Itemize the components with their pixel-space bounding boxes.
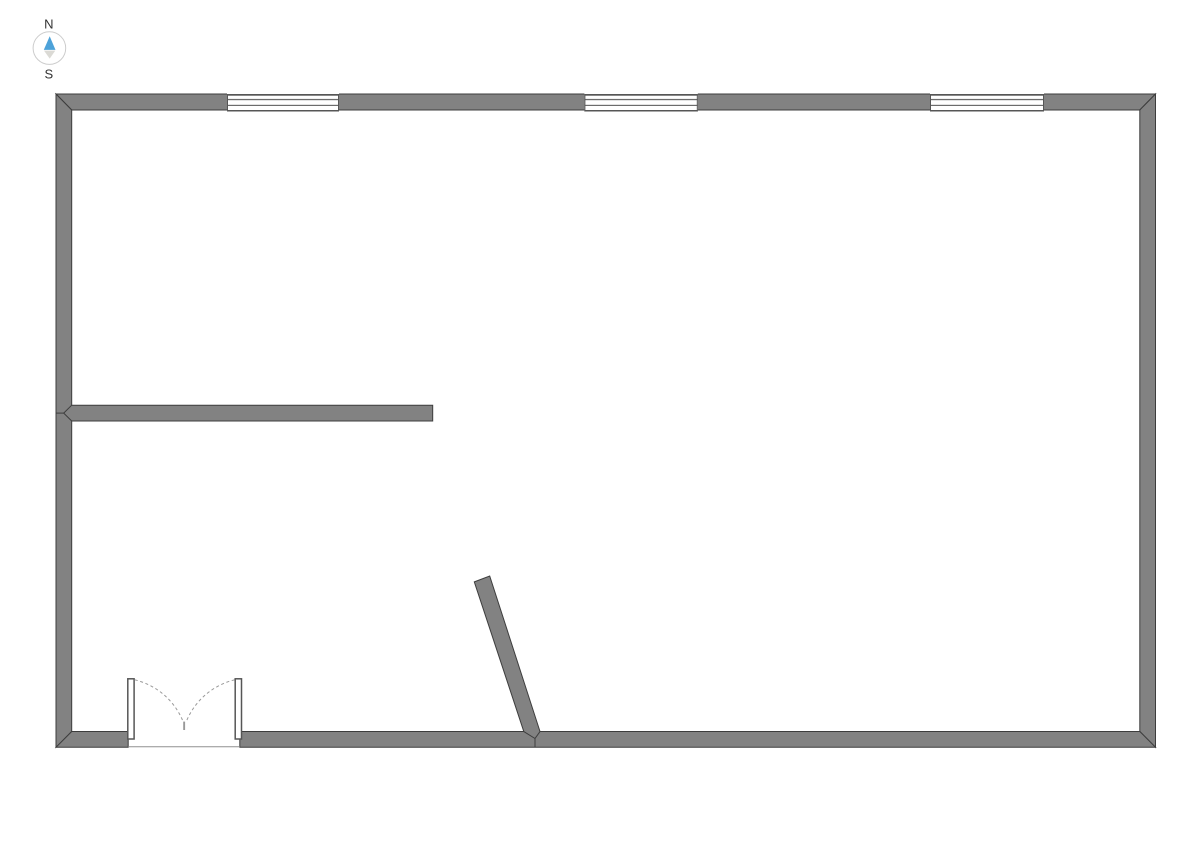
svg-text:N: N bbox=[44, 17, 53, 32]
svg-text:S: S bbox=[44, 67, 53, 82]
